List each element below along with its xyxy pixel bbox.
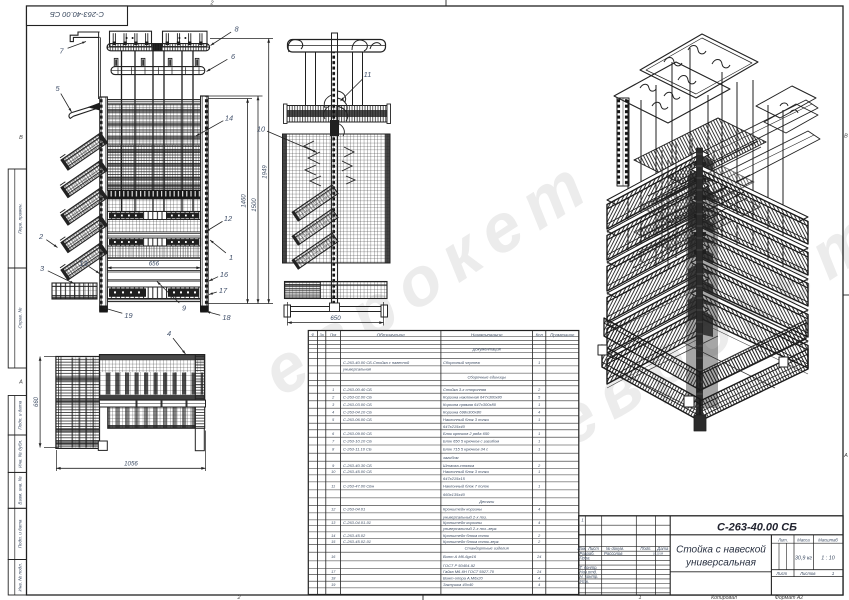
svg-text:Сборочный чертеж: Сборочный чертеж	[443, 360, 480, 365]
svg-text:17: 17	[219, 286, 228, 295]
svg-text:Винт А М6-6gх16: Винт А М6-6gх16	[443, 554, 477, 559]
svg-text:9: 9	[182, 304, 186, 313]
svg-text:С-263-40.30 СБ: С-263-40.30 СБ	[343, 463, 372, 468]
svg-text:Детали: Детали	[478, 499, 495, 504]
svg-text:1: 1	[638, 595, 641, 600]
svg-text:Стандартные изделия: Стандартные изделия	[465, 546, 510, 551]
svg-text:Ф: Ф	[312, 333, 315, 337]
svg-text:Блок крючков 2 ряда 650: Блок крючков 2 ряда 650	[443, 431, 490, 436]
svg-text:Заглушка 40х40: Заглушка 40х40	[443, 582, 474, 587]
svg-text:Пров.: Пров.	[580, 556, 591, 561]
svg-text:Блок 715 5 крючков 34 с: Блок 715 5 крючков 34 с	[443, 447, 488, 452]
svg-text:1: 1	[229, 253, 233, 262]
svg-text:Штанга-стяжка: Штанга-стяжка	[443, 463, 475, 468]
svg-text:18: 18	[222, 313, 231, 322]
svg-text:24: 24	[536, 555, 541, 559]
svg-text:4: 4	[538, 521, 540, 525]
svg-text:ГОСТ Р 50404-92: ГОСТ Р 50404-92	[443, 563, 476, 568]
svg-text:Наклонный блок 3 полки: Наклонный блок 3 полки	[443, 417, 490, 422]
svg-text:660: 660	[34, 396, 40, 407]
svg-text:Рассолов: Рассолов	[604, 551, 623, 556]
svg-text:1: 1	[538, 432, 540, 436]
svg-text:универсальный 2-х поз.: универсальный 2-х поз.	[442, 514, 487, 519]
svg-text:1: 1	[832, 571, 835, 576]
svg-text:24: 24	[536, 570, 541, 574]
svg-text:Кронштейн корзины: Кронштейн корзины	[443, 520, 482, 525]
svg-text:11: 11	[364, 70, 372, 79]
svg-text:30,9 кг: 30,9 кг	[795, 556, 813, 562]
svg-text:Взам. инв. №: Взам. инв. №	[18, 476, 23, 504]
svg-text:С-263-03.00 СБ: С-263-03.00 СБ	[343, 402, 372, 407]
svg-text:Перв. примен.: Перв. примен.	[18, 203, 23, 234]
svg-text:1949: 1949	[263, 165, 269, 179]
svg-text:2: 2	[209, 1, 213, 7]
svg-text:С-263-04.01-01: С-263-04.01-01	[343, 520, 371, 525]
svg-text:1: 1	[538, 361, 540, 365]
svg-text:За: За	[320, 333, 324, 337]
svg-text:Корзина наклонная 647х300х80: Корзина наклонная 647х300х80	[443, 395, 503, 400]
svg-text:Подп. и дата: Подп. и дата	[18, 519, 23, 548]
svg-text:10: 10	[257, 125, 266, 134]
svg-text:1500: 1500	[252, 198, 258, 212]
svg-text:1: 1	[538, 403, 540, 407]
svg-text:Наклонный блок 3 полки: Наклонный блок 3 полки	[443, 469, 490, 474]
svg-text:650: 650	[330, 315, 341, 322]
svg-text:Листов: Листов	[799, 571, 816, 576]
svg-text:Наименование: Наименование	[471, 332, 503, 337]
svg-text:С-263-11.10 СБ: С-263-11.10 СБ	[343, 447, 372, 452]
svg-text:Формат А2: Формат А2	[775, 595, 803, 600]
svg-text:14: 14	[225, 114, 233, 123]
svg-text:Поз: Поз	[330, 333, 337, 337]
svg-text:В: В	[844, 134, 848, 140]
svg-text:Кронштейн блока полок-зерк.: Кронштейн блока полок-зерк.	[443, 539, 500, 544]
svg-text:С-263-06.00 СБ: С-263-06.00 СБ	[343, 417, 372, 422]
svg-text:19: 19	[124, 311, 132, 320]
svg-text:Стойка с навеской: Стойка с навеской	[676, 545, 766, 556]
svg-text:Винт-опора А.М6х20: Винт-опора А.М6х20	[443, 576, 484, 581]
svg-text:С-263-09.00 СБ: С-263-09.00 СБ	[343, 431, 372, 436]
svg-text:С-263-45.00 СБ: С-263-45.00 СБ	[343, 469, 372, 474]
svg-text:Сборочные единицы: Сборочные единицы	[467, 375, 506, 380]
svg-text:1: 1	[538, 470, 540, 474]
svg-text:1: 1	[538, 448, 540, 452]
svg-text:универсальная: универсальная	[342, 367, 372, 372]
svg-text:С-263-45.02: С-263-45.02	[343, 533, 366, 538]
svg-text:647х215х15: 647х215х15	[443, 476, 466, 481]
svg-text:С-263-00.40 СБ: С-263-00.40 СБ	[343, 387, 372, 392]
svg-text:С-263-02.00 СБ: С-263-02.00 СБ	[343, 395, 372, 400]
svg-text:Инв. № дубл.: Инв. № дубл.	[18, 440, 23, 468]
svg-text:4: 4	[538, 577, 540, 581]
svg-text:Корзина прямая 647х300х80: Корзина прямая 647х300х80	[443, 402, 497, 407]
svg-text:Подп.: Подп.	[640, 546, 651, 551]
svg-text:Кронштейн корзины: Кронштейн корзины	[443, 507, 482, 512]
svg-text:Дата: Дата	[656, 546, 669, 551]
svg-text:4: 4	[538, 583, 540, 587]
svg-text:656: 656	[149, 261, 160, 268]
svg-text:12: 12	[224, 214, 232, 223]
svg-text:Подп. и дата: Подп. и дата	[18, 400, 23, 429]
svg-text:4: 4	[167, 329, 171, 338]
svg-text:Справ. №: Справ. №	[18, 308, 23, 329]
svg-text:Кронштейн блока полок: Кронштейн блока полок	[443, 533, 490, 538]
svg-text:2: 2	[236, 595, 240, 600]
svg-text:1: 1	[538, 485, 540, 489]
svg-text:Масса: Масса	[797, 537, 810, 542]
svg-text:1: 1	[538, 418, 540, 422]
svg-text:Кол: Кол	[536, 332, 544, 337]
svg-text:4: 4	[538, 508, 540, 512]
svg-text:1 : 10: 1 : 10	[821, 556, 835, 562]
svg-text:Наклонный блок 7 полок: Наклонный блок 7 полок	[443, 484, 490, 489]
svg-text:С-263-47.00 СБн: С-263-47.00 СБн	[343, 484, 375, 489]
svg-text:В: В	[19, 135, 23, 141]
svg-text:С-263-04.01: С-263-04.01	[343, 507, 365, 512]
svg-text:Масштаб: Масштаб	[818, 537, 838, 542]
svg-text:660х135х40: 660х135х40	[443, 492, 466, 497]
svg-text:647х215х40: 647х215х40	[443, 424, 466, 429]
svg-text:4: 4	[332, 411, 334, 415]
svg-text:загибом: загибом	[442, 455, 459, 460]
svg-text:16: 16	[220, 270, 229, 279]
svg-text:13: 13	[79, 259, 88, 268]
svg-text:С-263-04.10 СБ: С-263-04.10 СБ	[343, 410, 372, 415]
svg-text:1: 1	[332, 388, 334, 392]
svg-text:С-263-40.00 СБ.Стойка с навесн: С-263-40.00 СБ.Стойка с навесной	[343, 360, 410, 365]
svg-text:Инв. № подл.: Инв. № подл.	[18, 563, 23, 592]
svg-text:Примечание: Примечание	[550, 332, 575, 337]
svg-text:11: 11	[331, 485, 335, 489]
svg-text:1: 1	[538, 440, 540, 444]
svg-text:Корзина 698х300х80: Корзина 698х300х80	[443, 410, 482, 415]
svg-text:С-263-10.10 СБ: С-263-10.10 СБ	[343, 439, 372, 444]
svg-text:С-263-45.02-01: С-263-45.02-01	[343, 539, 371, 544]
svg-text:Лист: Лист	[775, 571, 787, 576]
svg-text:16.10.08: 16.10.08	[653, 552, 664, 556]
svg-text:Документация: Документация	[472, 347, 502, 352]
svg-text:С-263-40.00 СБ: С-263-40.00 СБ	[717, 521, 797, 533]
svg-text:А: А	[18, 380, 23, 386]
svg-text:1460: 1460	[241, 194, 247, 208]
svg-text:универсальная: универсальная	[685, 558, 757, 569]
svg-text:Стойка 3-х сторонняя: Стойка 3-х сторонняя	[443, 387, 487, 392]
svg-text:4: 4	[538, 411, 540, 415]
svg-text:1: 1	[581, 518, 583, 523]
svg-text:С-263-40.00 СБ: С-263-40.00 СБ	[50, 10, 104, 19]
svg-text:Гайка М6-6Н ГОСТ 5927-70: Гайка М6-6Н ГОСТ 5927-70	[443, 569, 495, 574]
svg-text:Лит.: Лит.	[777, 537, 788, 542]
svg-text:Блок 650 5 крючков с загибом: Блок 650 5 крючков с загибом	[443, 439, 499, 444]
svg-text:универсальный 2-х поз.-зерк.: универсальный 2-х поз.-зерк.	[442, 526, 498, 531]
svg-text:Обозначение: Обозначение	[377, 332, 406, 337]
svg-text:Утв.: Утв.	[580, 579, 590, 584]
svg-text:Копировал: Копировал	[711, 595, 737, 600]
svg-text:2: 2	[38, 232, 43, 241]
svg-text:А: А	[843, 453, 848, 459]
svg-text:1056: 1056	[124, 461, 138, 468]
svg-text:14: 14	[331, 534, 335, 538]
